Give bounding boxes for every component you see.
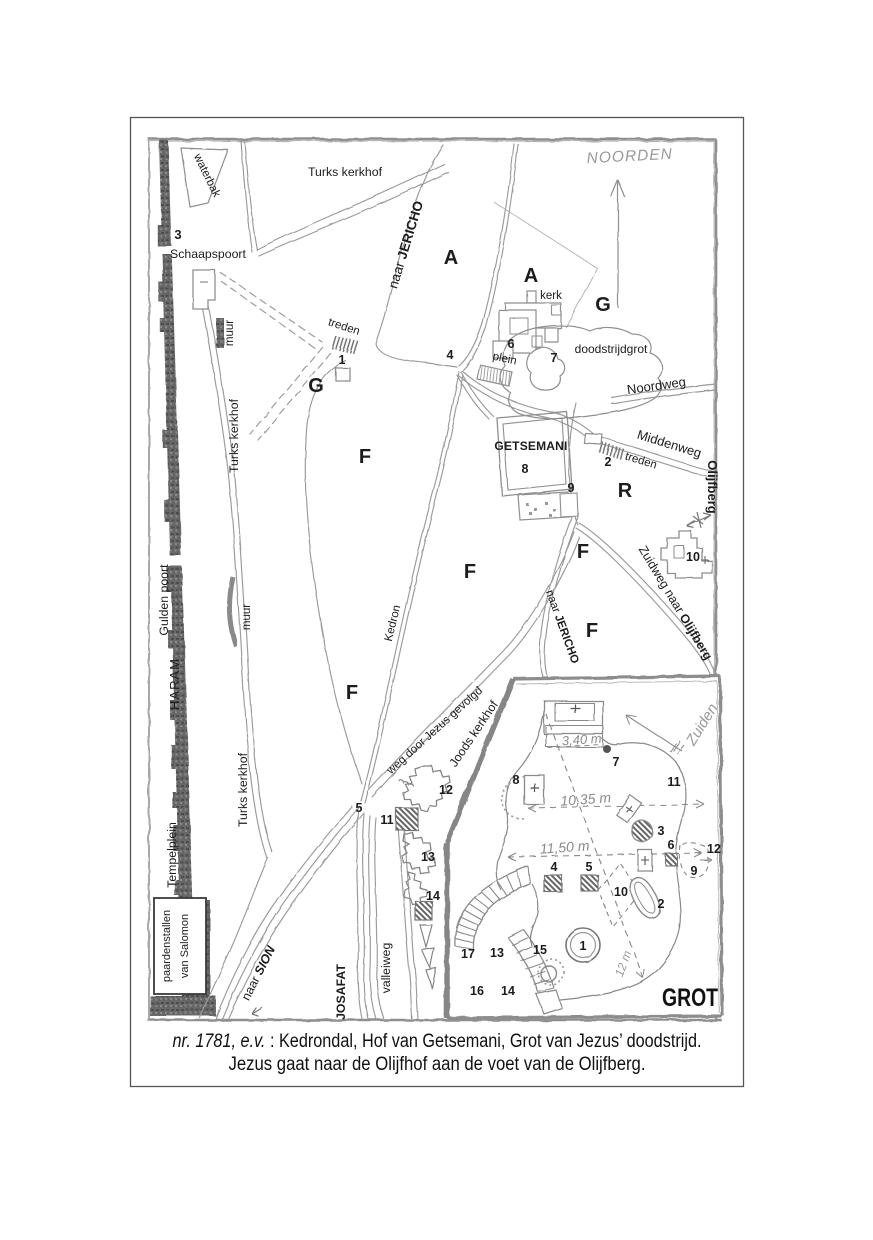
svg-text:14: 14 bbox=[426, 889, 440, 903]
svg-text:9: 9 bbox=[568, 481, 575, 495]
svg-text:GROT: GROT bbox=[662, 984, 718, 1012]
svg-text:3: 3 bbox=[658, 824, 665, 838]
svg-text:2: 2 bbox=[658, 897, 665, 911]
svg-text:kerk: kerk bbox=[540, 290, 562, 302]
svg-text:Turks kerkhof: Turks kerkhof bbox=[236, 752, 250, 827]
svg-text:10: 10 bbox=[614, 885, 628, 899]
svg-text:9: 9 bbox=[691, 864, 698, 878]
svg-text:R: R bbox=[618, 480, 633, 502]
svg-text:13: 13 bbox=[421, 850, 435, 864]
svg-text:valleiweg: valleiweg bbox=[379, 943, 393, 994]
svg-text:JOSAFAT: JOSAFAT bbox=[334, 964, 348, 1020]
svg-text:A: A bbox=[444, 247, 458, 269]
svg-text:F: F bbox=[577, 541, 589, 563]
svg-text:6: 6 bbox=[508, 337, 515, 351]
svg-text:doodstrijdgrot: doodstrijdgrot bbox=[575, 342, 648, 356]
svg-text:5: 5 bbox=[586, 860, 593, 874]
svg-text:Jezus gaat naar de Olijfhof aa: Jezus gaat naar de Olijfhof aan de voet … bbox=[229, 1054, 646, 1075]
svg-text:Gulden poort: Gulden poort bbox=[157, 564, 171, 636]
svg-text:17: 17 bbox=[461, 947, 475, 961]
svg-text:3: 3 bbox=[174, 227, 181, 242]
svg-text:F: F bbox=[359, 446, 371, 468]
svg-text:GETSEMANI: GETSEMANI bbox=[494, 439, 567, 453]
svg-text:G: G bbox=[595, 294, 611, 316]
svg-text:1: 1 bbox=[580, 939, 587, 953]
svg-text:Schaapspoort: Schaapspoort bbox=[170, 247, 246, 261]
svg-text:12: 12 bbox=[439, 783, 453, 797]
svg-text:15: 15 bbox=[533, 943, 547, 957]
svg-text:14: 14 bbox=[501, 984, 515, 998]
svg-text:F: F bbox=[464, 561, 476, 583]
svg-text:muur: muur bbox=[241, 604, 253, 630]
svg-text:G: G bbox=[308, 375, 324, 397]
svg-text:F: F bbox=[586, 620, 598, 642]
svg-text:11: 11 bbox=[380, 813, 393, 827]
svg-text:16: 16 bbox=[470, 984, 484, 998]
svg-text:Olijfberg: Olijfberg bbox=[705, 460, 720, 514]
svg-text:1: 1 bbox=[339, 353, 346, 367]
svg-text:4: 4 bbox=[447, 348, 454, 362]
svg-text:Tempelplein: Tempelplein bbox=[165, 822, 179, 888]
svg-text:2: 2 bbox=[605, 455, 612, 469]
svg-text:7: 7 bbox=[613, 755, 620, 769]
svg-text:10: 10 bbox=[686, 550, 700, 564]
svg-text:van Salomon: van Salomon bbox=[179, 914, 191, 978]
svg-text:HARAM: HARAM bbox=[167, 658, 182, 710]
svg-text:11: 11 bbox=[667, 775, 680, 789]
svg-text:7: 7 bbox=[551, 351, 558, 365]
svg-text:4: 4 bbox=[551, 860, 558, 874]
svg-text:F: F bbox=[346, 682, 358, 704]
svg-text:muur: muur bbox=[224, 320, 236, 346]
svg-text:12: 12 bbox=[707, 842, 721, 856]
svg-text:8: 8 bbox=[522, 462, 529, 476]
svg-text:8: 8 bbox=[513, 773, 520, 787]
svg-text:Turks kerkhof: Turks kerkhof bbox=[227, 398, 241, 473]
svg-text:6: 6 bbox=[668, 838, 675, 852]
svg-text:paardenstallen: paardenstallen bbox=[161, 910, 173, 982]
svg-text:nr. 1781, e.v. : Kedrondal, Ho: nr. 1781, e.v. : Kedrondal, Hof van Gets… bbox=[173, 1031, 702, 1052]
svg-text:13: 13 bbox=[490, 946, 504, 960]
svg-text:5: 5 bbox=[356, 801, 363, 815]
svg-text:Turks kerkhof: Turks kerkhof bbox=[308, 165, 383, 179]
svg-text:3,40 m: 3,40 m bbox=[561, 731, 602, 749]
svg-text:A: A bbox=[524, 265, 538, 287]
